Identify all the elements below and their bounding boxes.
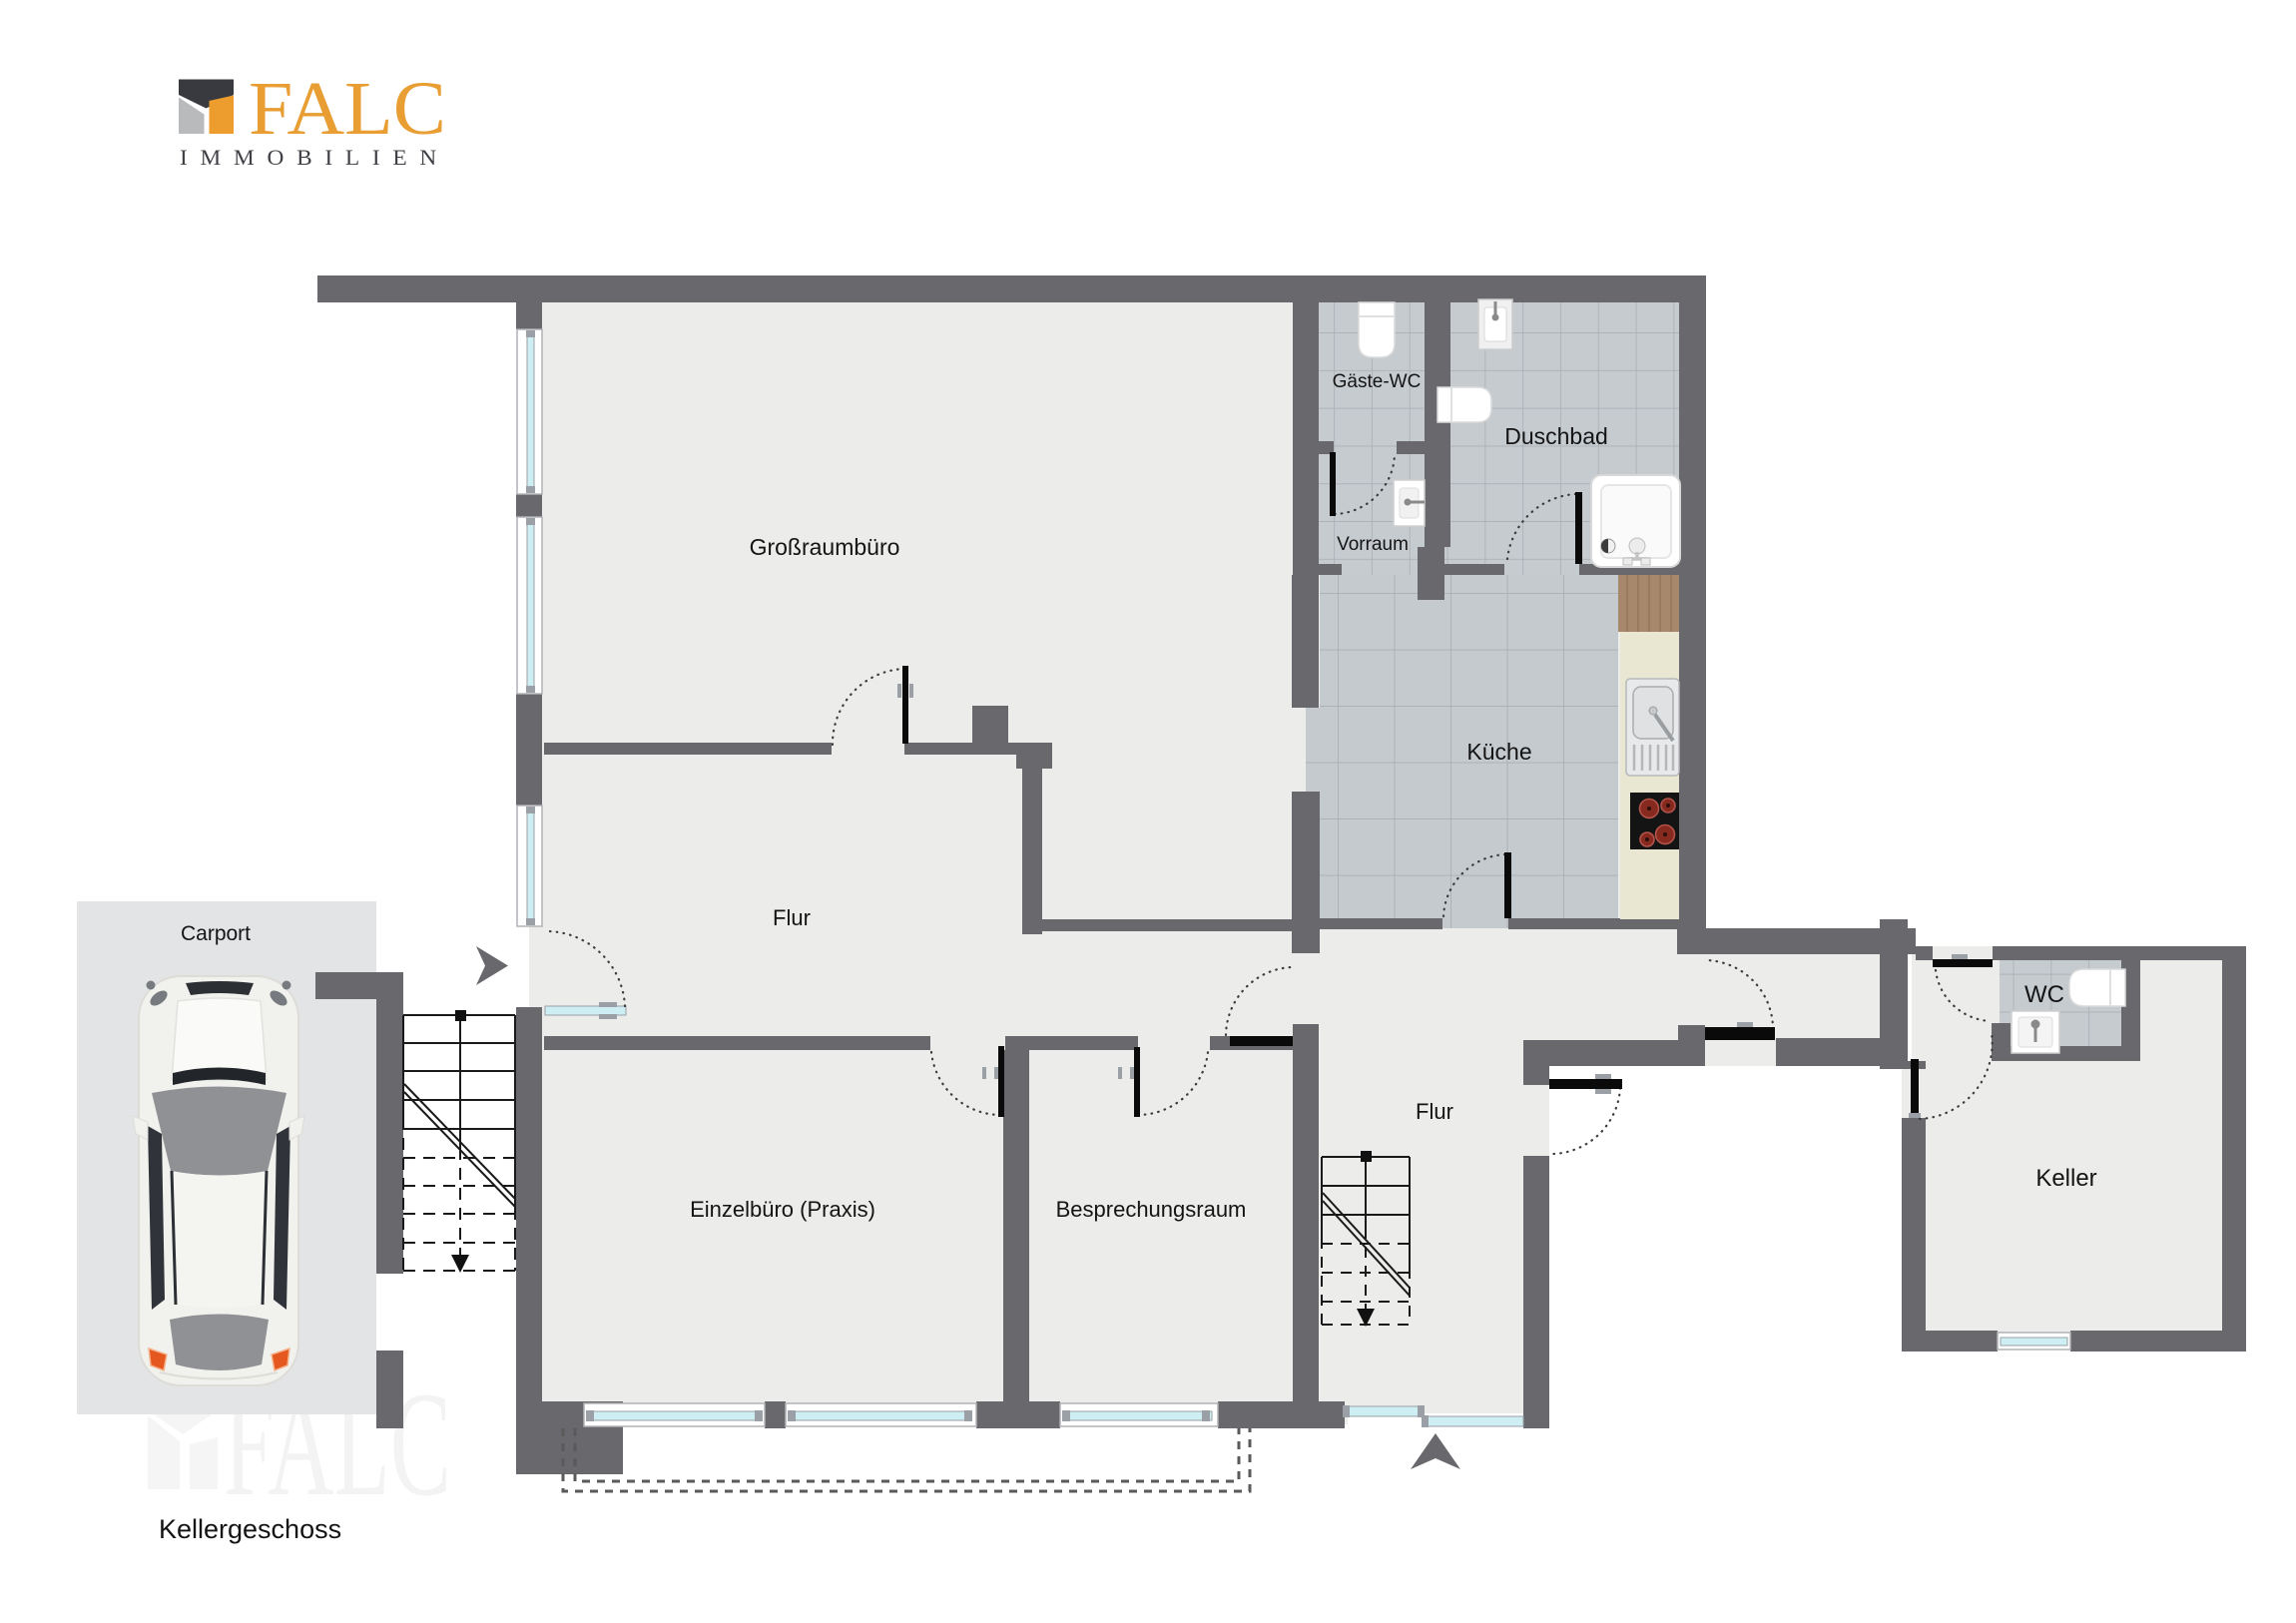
svg-text:Gäste-WC: Gäste-WC bbox=[1333, 371, 1422, 392]
svg-text:Großraumbüro: Großraumbüro bbox=[750, 534, 900, 560]
svg-text:Keller: Keller bbox=[2035, 1165, 2096, 1192]
svg-text:Carport: Carport bbox=[181, 922, 251, 945]
svg-text:Besprechungsraum: Besprechungsraum bbox=[1056, 1197, 1247, 1222]
svg-text:Einzelbüro (Praxis): Einzelbüro (Praxis) bbox=[690, 1197, 875, 1222]
svg-text:IMMOBILIEN: IMMOBILIEN bbox=[180, 145, 449, 170]
svg-text:Flur: Flur bbox=[773, 905, 811, 930]
svg-text:Flur: Flur bbox=[1416, 1099, 1453, 1124]
svg-text:Kellergeschoss: Kellergeschoss bbox=[159, 1514, 341, 1544]
svg-text:Küche: Küche bbox=[1466, 739, 1531, 765]
svg-text:Duschbad: Duschbad bbox=[1504, 423, 1608, 449]
svg-text:FALC: FALC bbox=[249, 67, 446, 151]
svg-text:Vorraum: Vorraum bbox=[1337, 534, 1409, 555]
svg-text:WC: WC bbox=[2024, 981, 2064, 1008]
